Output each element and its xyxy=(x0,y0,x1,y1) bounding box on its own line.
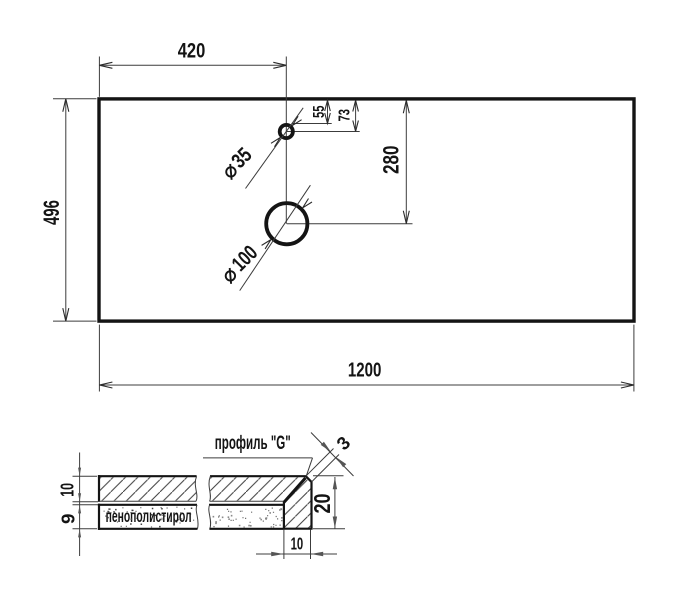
svg-text:10: 10 xyxy=(291,533,304,553)
svg-text:20: 20 xyxy=(309,494,335,514)
svg-text:280: 280 xyxy=(378,146,403,175)
svg-text:55: 55 xyxy=(311,105,328,118)
svg-text:9: 9 xyxy=(57,514,78,524)
svg-text:420: 420 xyxy=(178,38,206,62)
svg-text:1200: 1200 xyxy=(348,359,382,382)
svg-text:73: 73 xyxy=(337,109,354,122)
svg-text:пенополистирол: пенополистирол xyxy=(106,506,192,526)
svg-text:10: 10 xyxy=(57,483,78,497)
svg-text:профиль "G": профиль "G" xyxy=(215,433,291,454)
svg-text:496: 496 xyxy=(39,200,64,225)
